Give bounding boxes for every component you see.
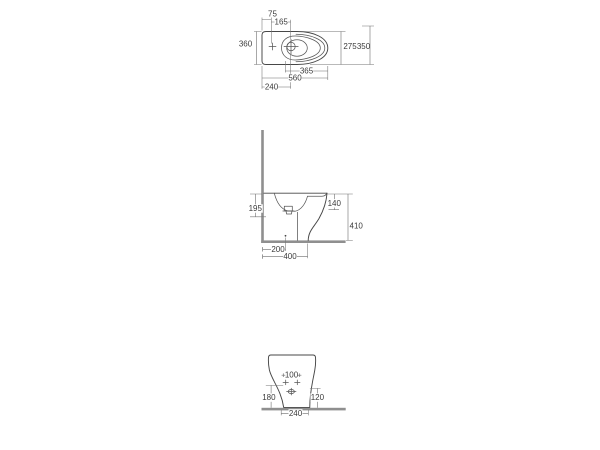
side-front-profile	[308, 193, 327, 240]
dim-label-front-100: 100	[285, 371, 299, 380]
front-view: 100 180 120 240	[262, 355, 346, 418]
front-fixing-hole-left	[283, 380, 288, 385]
plan-view: 75 165 360 275 350 365 560 240	[239, 10, 374, 92]
dim-label-side-195: 195	[249, 204, 263, 213]
dim-label-plan-350: 350	[357, 42, 371, 51]
plan-rear-hole-cross	[269, 43, 276, 50]
side-view: 195 140 410 200 400	[248, 130, 364, 261]
side-wall-line	[261, 130, 264, 243]
dim-label-plan-240: 240	[265, 83, 279, 92]
dim-label-plan-360: 360	[239, 40, 253, 49]
dim-label-plan-365: 365	[300, 67, 314, 76]
dim-label-side-410: 410	[350, 222, 364, 231]
plan-dimension-lines	[257, 20, 371, 88]
front-floor-line	[262, 408, 346, 411]
dim-label-side-400: 400	[283, 252, 297, 261]
dim-label-front-180: 180	[262, 393, 276, 402]
dim-label-plan-165: 165	[275, 18, 289, 27]
side-bowl-profile	[274, 193, 307, 211]
technical-drawing-page: 75 165 360 275 350 365 560 240	[0, 0, 600, 450]
front-fixing-hole-right	[295, 380, 300, 385]
dim-label-front-240: 240	[289, 409, 303, 418]
front-drain-cross	[287, 388, 296, 395]
dim-label-side-140: 140	[328, 199, 342, 208]
dim-label-plan-275: 275	[343, 42, 357, 51]
side-outlet-dot	[285, 235, 287, 237]
dim-label-front-120: 120	[311, 393, 325, 402]
side-floor-line	[261, 240, 345, 243]
dim-label-plan-560: 560	[288, 74, 302, 83]
bidet-drawing-svg: 75 165 360 275 350 365 560 240	[0, 0, 600, 450]
plan-faucet-cross	[284, 39, 298, 54]
